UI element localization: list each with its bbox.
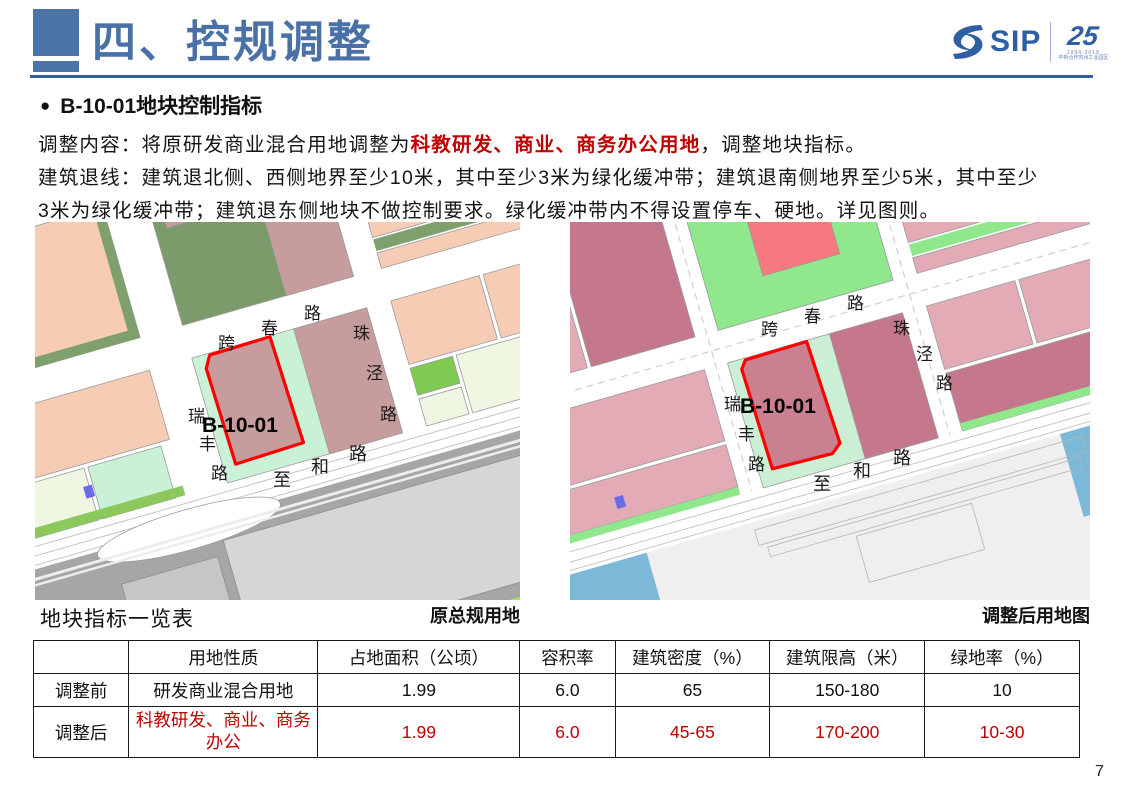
header-far: 容积率 bbox=[520, 641, 615, 674]
map-adjusted-plan: 跨春路 珠泾路 瑞丰路 至和路 B-10-01 bbox=[570, 222, 1090, 600]
cell-density: 65 bbox=[615, 674, 770, 707]
sip-swoosh-icon bbox=[948, 22, 988, 62]
page-number: 7 bbox=[1095, 763, 1104, 781]
title-decoration-bar bbox=[33, 61, 79, 72]
header-height: 建筑限高（米） bbox=[770, 641, 925, 674]
slide: 四、控规调整 SIP 25 1994-2019 中新合作苏州工业园区 ●B-10… bbox=[0, 0, 1123, 794]
cell-area: 1.99 bbox=[318, 674, 520, 707]
section-heading: ●B-10-01地块控制指标 bbox=[40, 90, 262, 120]
map-original-svg: 跨春路 珠泾路 瑞丰路 至和路 B-10-01 bbox=[35, 222, 520, 600]
section-title: B-10-01地块控制指标 bbox=[60, 95, 262, 118]
header-green: 绿地率（%） bbox=[925, 641, 1080, 674]
indicator-table: 用地性质 占地面积（公顷） 容积率 建筑密度（%） 建筑限高（米） 绿地率（%）… bbox=[33, 640, 1080, 758]
setback-line-2: 3米为绿化缓冲带；建筑退东侧地块不做控制要求。绿化缓冲带内不得设置停车、硬地。详… bbox=[38, 194, 940, 223]
header-land-use: 用地性质 bbox=[129, 641, 318, 674]
b-10-01-label: B-10-01 bbox=[202, 414, 278, 437]
line1-suffix: ，调整地块指标。 bbox=[700, 134, 866, 156]
sip-logo-text: SIP bbox=[990, 25, 1041, 59]
header-rule bbox=[30, 75, 1093, 78]
title-decoration-square bbox=[33, 9, 79, 56]
cell-green: 10-30 bbox=[925, 707, 1080, 758]
anniversary-logo: 25 1994-2019 中新合作苏州工业园区 bbox=[1058, 23, 1108, 61]
row-label: 调整后 bbox=[34, 707, 129, 758]
cell-land-use: 科教研发、商业、商务办公 bbox=[129, 707, 318, 758]
cell-height: 170-200 bbox=[770, 707, 925, 758]
table-title: 地块指标一览表 bbox=[40, 603, 194, 633]
cell-far: 6.0 bbox=[520, 674, 615, 707]
caption-adjusted: 调整后用地图 bbox=[975, 602, 1090, 628]
caption-original: 原总规用地 bbox=[430, 602, 520, 628]
table-row-after: 调整后 科教研发、商业、商务办公 1.99 6.0 45-65 170-200 … bbox=[34, 707, 1080, 758]
table-row-before: 调整前 研发商业混合用地 1.99 6.0 65 150-180 10 bbox=[34, 674, 1080, 707]
cell-green: 10 bbox=[925, 674, 1080, 707]
cell-density: 45-65 bbox=[615, 707, 770, 758]
line1-highlight: 科教研发、商业、商务办公用地 bbox=[411, 134, 701, 156]
anniversary-subtitle: 中新合作苏州工业园区 bbox=[1058, 56, 1108, 61]
adjust-content-line: 调整内容：将原研发商业混合用地调整为科教研发、商业、商务办公用地，调整地块指标。 bbox=[38, 128, 866, 157]
anniversary-25: 25 bbox=[1066, 23, 1100, 50]
page-title: 四、控规调整 bbox=[92, 6, 374, 70]
cell-height: 150-180 bbox=[770, 674, 925, 707]
header-blank bbox=[34, 641, 129, 674]
setback-line-1: 建筑退线：建筑退北侧、西侧地界至少10米，其中至少3米为绿化缓冲带；建筑退南侧地… bbox=[38, 161, 1038, 190]
header-area: 占地面积（公顷） bbox=[318, 641, 520, 674]
cell-far: 6.0 bbox=[520, 707, 615, 758]
line1-prefix: 调整内容：将原研发商业混合用地调整为 bbox=[38, 134, 411, 156]
cell-area: 1.99 bbox=[318, 707, 520, 758]
bullet-icon: ● bbox=[40, 96, 50, 115]
logo-divider bbox=[1050, 22, 1051, 62]
b-10-01-label: B-10-01 bbox=[740, 395, 816, 418]
sip-logo: SIP 25 1994-2019 中新合作苏州工业园区 bbox=[948, 14, 1113, 70]
table-header-row: 用地性质 占地面积（公顷） 容积率 建筑密度（%） 建筑限高（米） 绿地率（%） bbox=[34, 641, 1080, 674]
map-adjusted-svg: 跨春路 珠泾路 瑞丰路 至和路 B-10-01 bbox=[570, 222, 1090, 600]
cell-land-use: 研发商业混合用地 bbox=[129, 674, 318, 707]
row-label: 调整前 bbox=[34, 674, 129, 707]
header-density: 建筑密度（%） bbox=[615, 641, 770, 674]
map-original-plan: 跨春路 珠泾路 瑞丰路 至和路 B-10-01 bbox=[35, 222, 520, 600]
